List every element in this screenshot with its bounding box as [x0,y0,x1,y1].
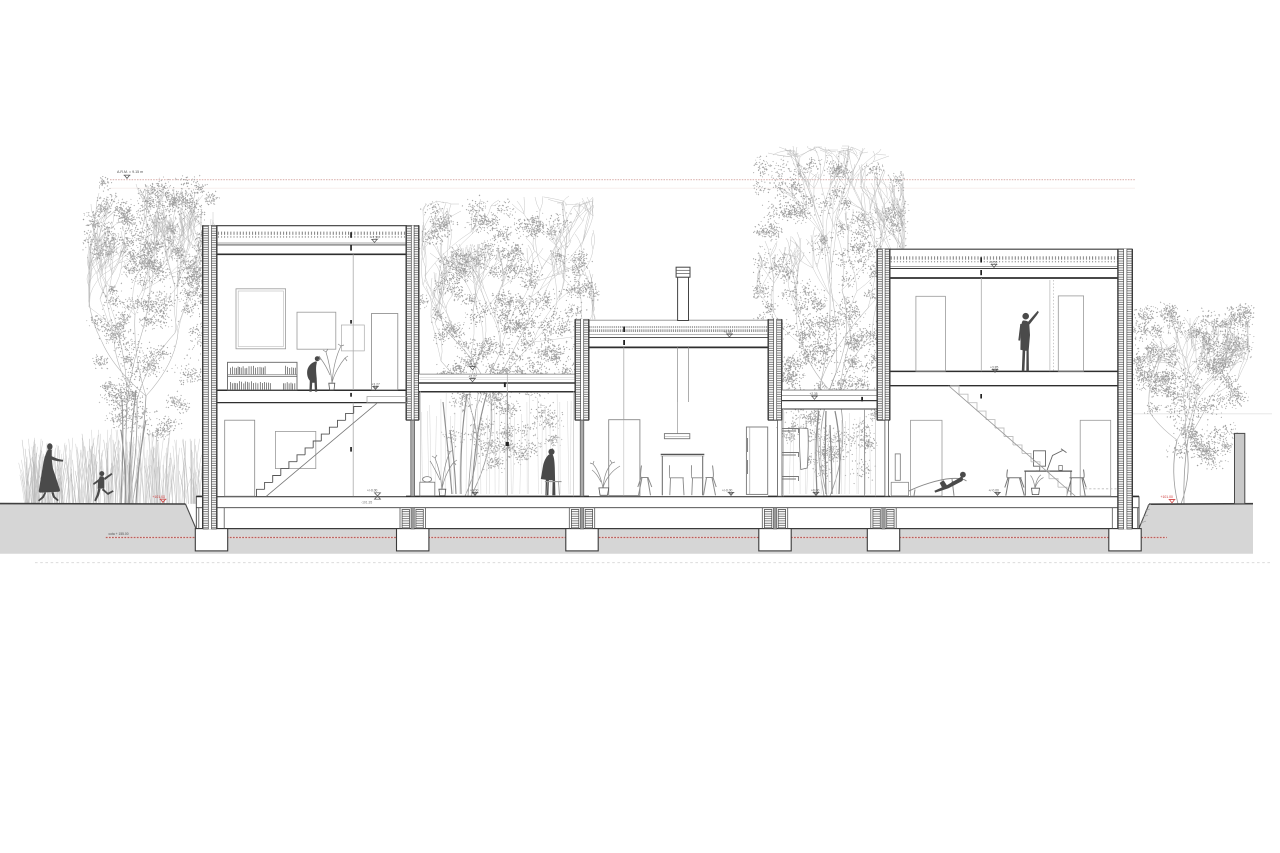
svg-text:+3.27: +3.27 [372,382,381,386]
svg-text:+/-0.00: +/-0.00 [722,488,733,492]
svg-text:+4.30: +4.30 [724,330,733,334]
svg-text:+/-0.00: +/-0.00 [989,488,1000,492]
svg-text:+2.35: +2.35 [810,392,818,396]
svg-text:+7.30: +7.30 [371,235,380,239]
svg-text:+3.00: +3.00 [469,363,478,367]
svg-text:+101.00: +101.00 [153,495,165,499]
svg-text:A.R.M. = 9.15 m: A.R.M. = 9.15 m [117,170,143,174]
svg-text:+2.27: +2.27 [469,375,478,379]
svg-text:-101.35: -101.35 [361,501,372,505]
svg-text:+0.00: +0.00 [470,488,479,492]
svg-text:+0.00: +0.00 [811,488,820,492]
svg-text:+/-0.00: +/-0.00 [367,488,378,492]
svg-text:cota + 155.00: cota + 155.00 [109,532,129,536]
svg-text:+101.00: +101.00 [1161,495,1173,499]
svg-text:+6.55: +6.55 [989,260,998,264]
svg-text:+3.85: +3.85 [990,365,999,369]
